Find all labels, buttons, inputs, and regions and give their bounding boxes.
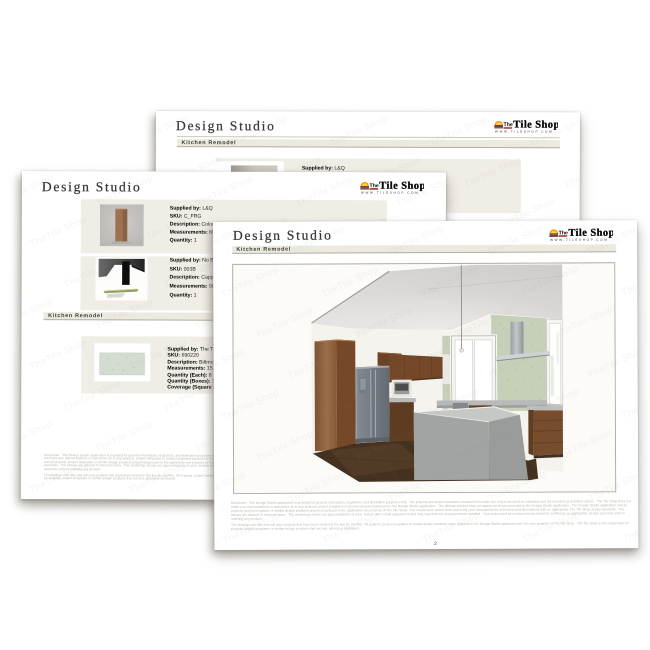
svg-text:The: The	[369, 182, 378, 188]
svg-text:WWW.TILESHOP.COM: WWW.TILESHOP.COM	[361, 190, 419, 194]
svg-text:The: The	[504, 121, 513, 127]
svg-text:WWW.TILESHOP.COM: WWW.TILESHOP.COM	[495, 129, 553, 133]
svg-text:WWW.TILESHOP.COM: WWW.TILESHOP.COM	[550, 238, 608, 242]
svg-text:The: The	[559, 230, 568, 236]
